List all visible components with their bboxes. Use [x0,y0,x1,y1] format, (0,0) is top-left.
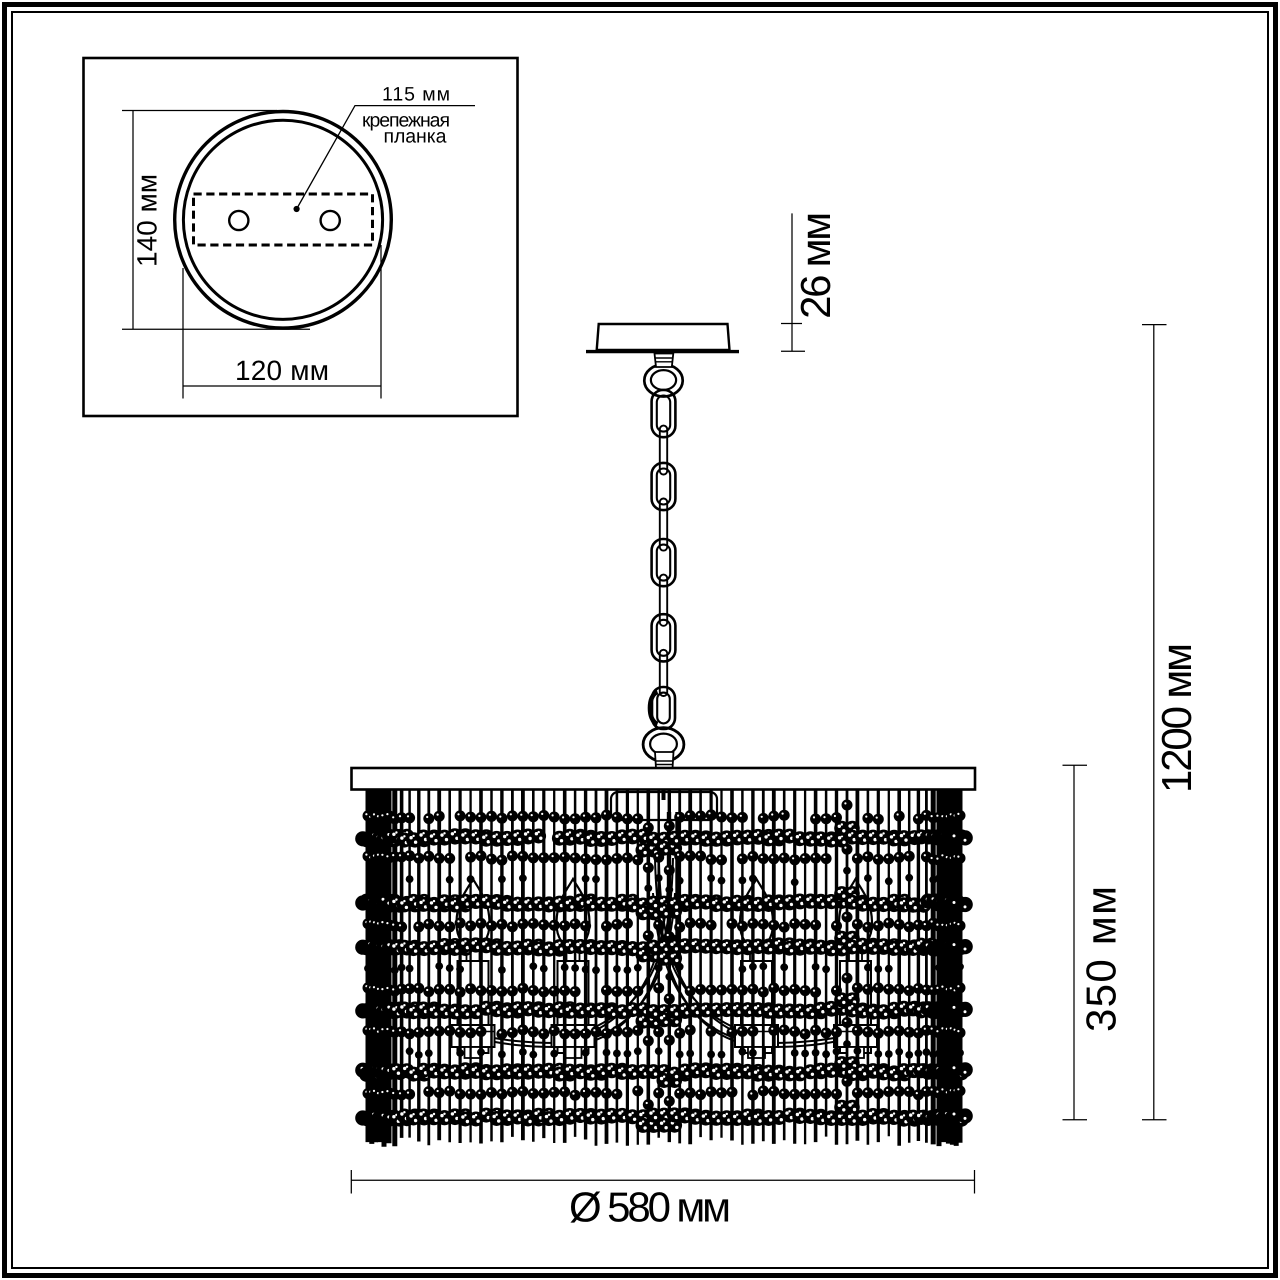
svg-text:планка: планка [384,126,447,148]
svg-text:Ø 580 мм: Ø 580 мм [569,1184,731,1231]
svg-text:1200 мм: 1200 мм [1153,643,1200,793]
svg-text:140 мм: 140 мм [132,174,163,267]
svg-text:26 мм: 26 мм [792,212,839,319]
svg-text:120 мм: 120 мм [235,355,329,386]
svg-text:115 мм: 115 мм [382,84,450,106]
svg-text:350 мм: 350 мм [1078,886,1125,1032]
